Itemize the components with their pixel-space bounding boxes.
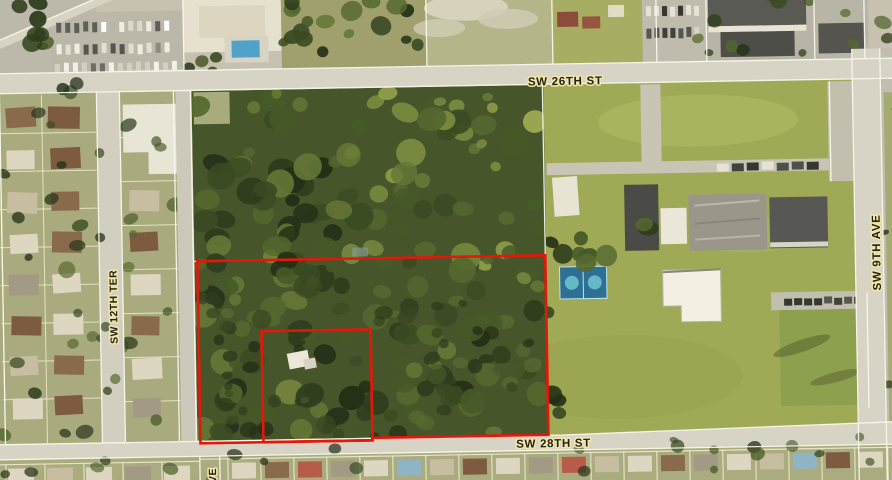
clearing-object <box>352 247 368 256</box>
street-label-sw-9th-ave: SW 9TH AVE <box>871 214 884 290</box>
house <box>557 12 578 27</box>
left-residential-block <box>0 91 189 446</box>
school-building-dark <box>624 184 659 251</box>
school-building-dark2 <box>769 196 828 248</box>
walkway <box>640 84 661 164</box>
street-label-sw-12th-ter: SW 12TH TER <box>107 270 120 344</box>
lawn-square <box>779 309 869 407</box>
school-building-white <box>660 208 687 244</box>
swimming-pool <box>231 40 259 57</box>
wooded-parcel <box>178 78 555 446</box>
house <box>582 16 600 28</box>
school-field-block <box>497 79 871 436</box>
small-white-house <box>552 176 580 217</box>
street-label-ave-partial: AVE <box>207 468 219 480</box>
parking-lot <box>51 11 184 71</box>
aerial-map: SW 26TH ST SW 12TH TER SW 9TH AVE SW 28T… <box>0 0 892 480</box>
house <box>608 5 624 17</box>
commercial-building <box>708 0 806 26</box>
map-scene: SW 26TH ST SW 12TH TER SW 9TH AVE SW 28T… <box>0 0 892 480</box>
street-label-sw-28th-st: SW 28TH ST <box>516 438 591 451</box>
school-building-gray <box>688 193 767 250</box>
street-label-sw-26th-st: SW 26TH ST <box>528 75 603 88</box>
